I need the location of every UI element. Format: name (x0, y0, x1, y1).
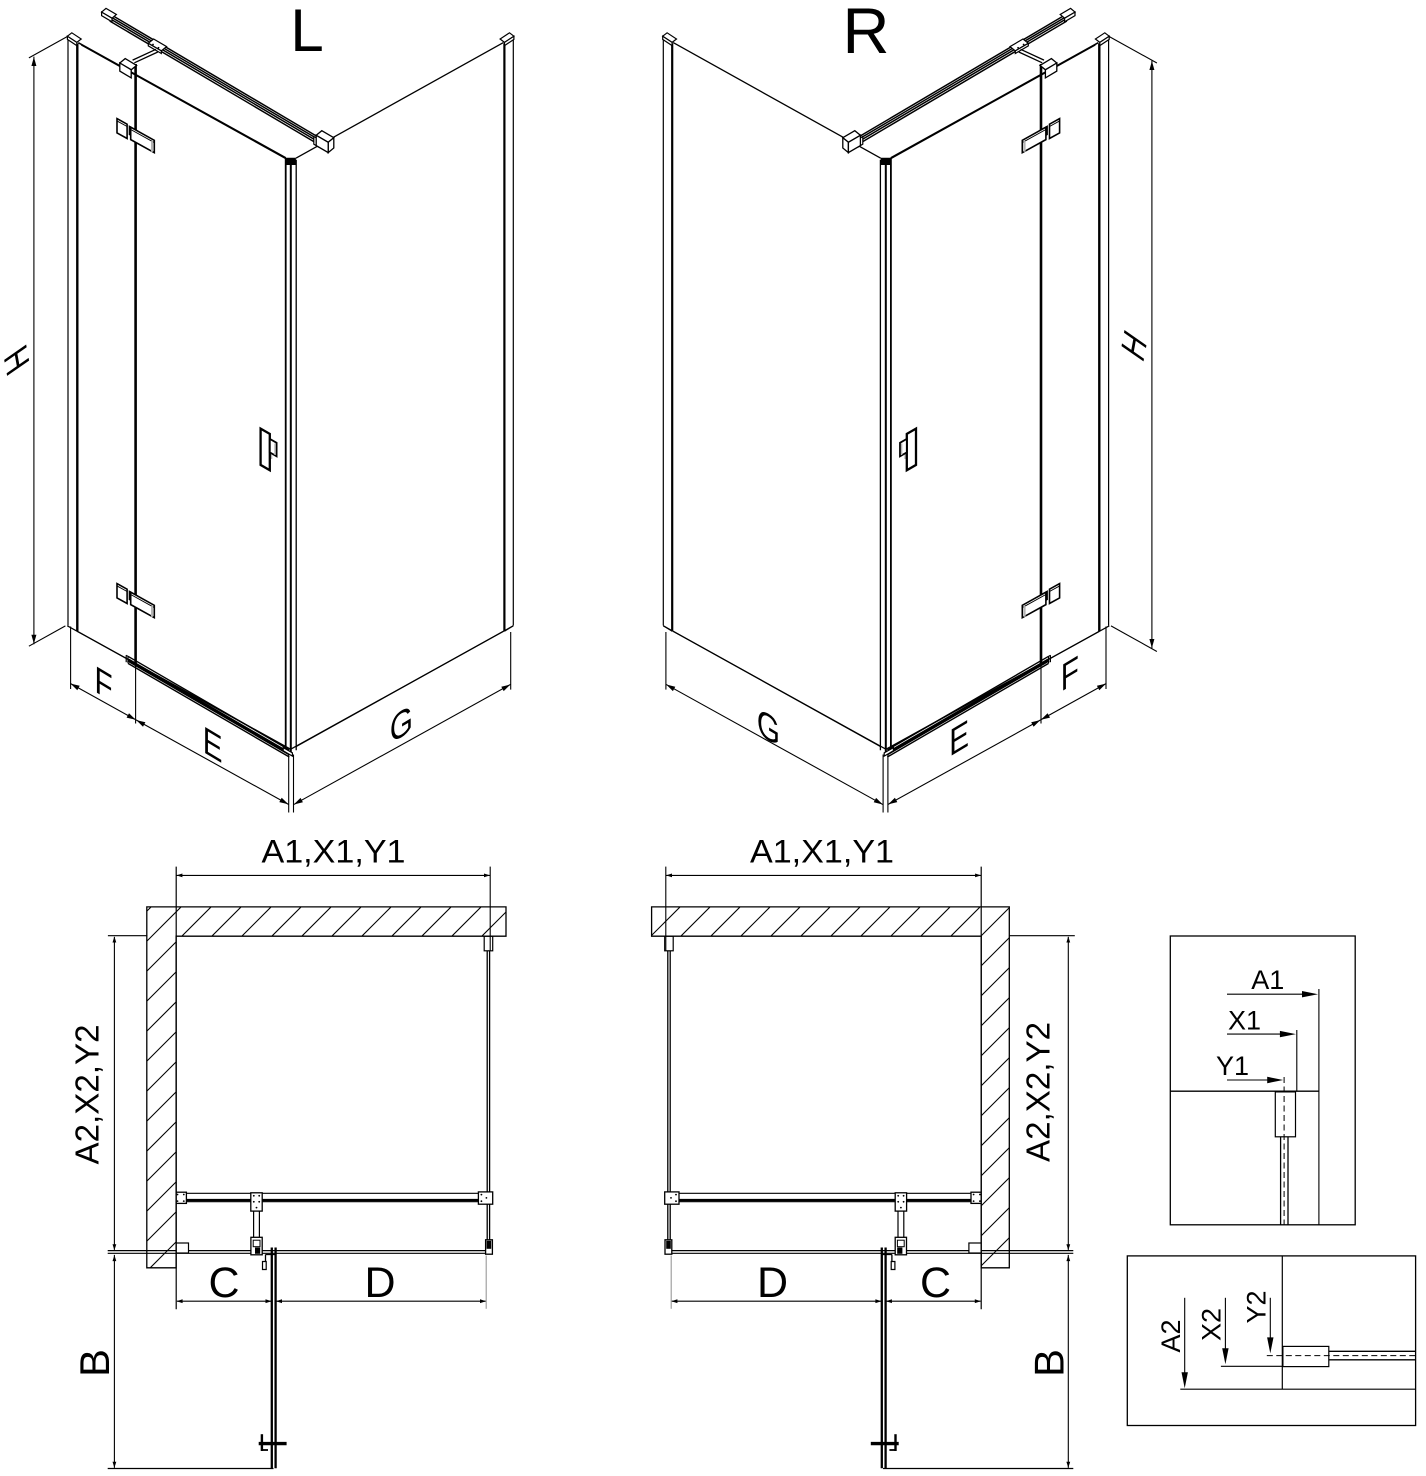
svg-text:X1: X1 (1228, 1006, 1261, 1036)
svg-text:A2: A2 (1156, 1319, 1186, 1352)
svg-text:A2,X2,Y2: A2,X2,Y2 (69, 1025, 106, 1165)
svg-text:R: R (843, 0, 890, 67)
svg-text:Y1: Y1 (1216, 1051, 1249, 1081)
svg-text:A1,X1,Y1: A1,X1,Y1 (262, 834, 406, 870)
svg-text:A1: A1 (1251, 965, 1284, 995)
svg-text:C: C (920, 1259, 951, 1307)
svg-text:B: B (1026, 1349, 1073, 1377)
svg-text:X2: X2 (1197, 1308, 1227, 1341)
svg-text:C: C (208, 1259, 239, 1307)
svg-text:Y2: Y2 (1242, 1290, 1272, 1323)
svg-text:L: L (290, 0, 323, 64)
svg-text:A1,X1,Y1: A1,X1,Y1 (750, 834, 894, 870)
svg-text:B: B (71, 1349, 118, 1377)
svg-text:A2,X2,Y2: A2,X2,Y2 (1020, 1022, 1057, 1162)
svg-text:D: D (364, 1259, 395, 1307)
svg-text:D: D (757, 1259, 788, 1307)
